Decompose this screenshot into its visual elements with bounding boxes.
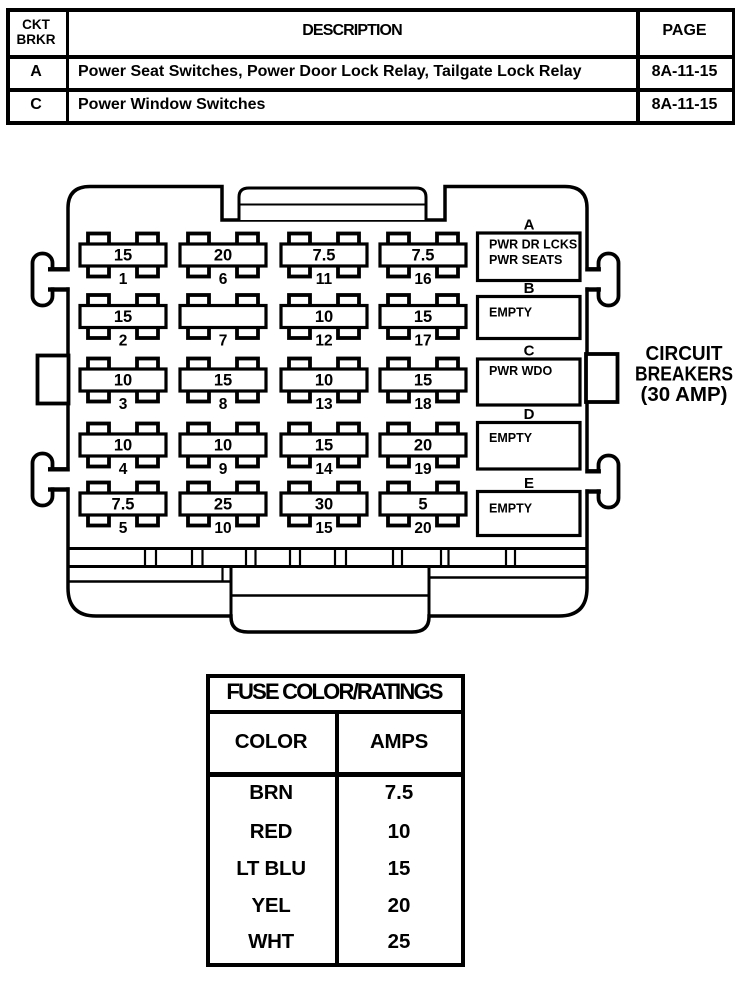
svg-text:B: B xyxy=(524,280,535,297)
svg-text:14: 14 xyxy=(315,461,333,478)
svg-text:15: 15 xyxy=(214,372,232,390)
svg-text:10: 10 xyxy=(315,308,333,326)
svg-text:D: D xyxy=(524,406,535,423)
svg-text:13: 13 xyxy=(315,396,333,413)
svg-text:CIRCUIT: CIRCUIT xyxy=(646,343,723,365)
svg-text:2: 2 xyxy=(119,333,128,350)
svg-text:6: 6 xyxy=(219,271,228,288)
svg-text:5: 5 xyxy=(418,496,427,514)
svg-text:PWR SEATS: PWR SEATS xyxy=(489,253,562,267)
svg-text:3: 3 xyxy=(119,396,128,413)
svg-text:15: 15 xyxy=(114,308,132,326)
svg-text:30: 30 xyxy=(315,496,333,514)
svg-text:10: 10 xyxy=(315,372,333,390)
svg-text:EMPTY: EMPTY xyxy=(489,502,533,516)
svg-text:PWR DR LCKS: PWR DR LCKS xyxy=(489,238,577,252)
svg-text:15: 15 xyxy=(315,437,333,455)
svg-text:15: 15 xyxy=(114,247,132,265)
svg-text:PWR WDO: PWR WDO xyxy=(489,364,552,378)
svg-text:C: C xyxy=(524,343,535,360)
svg-text:EMPTY: EMPTY xyxy=(489,431,533,445)
svg-text:15: 15 xyxy=(414,308,432,326)
svg-text:4: 4 xyxy=(119,461,128,478)
svg-text:A: A xyxy=(524,217,535,234)
svg-text:5: 5 xyxy=(119,520,128,537)
svg-text:11: 11 xyxy=(316,271,333,288)
svg-text:10: 10 xyxy=(214,437,232,455)
svg-text:15: 15 xyxy=(315,520,333,537)
svg-text:7: 7 xyxy=(219,333,228,350)
svg-text:BREAKERS: BREAKERS xyxy=(635,364,733,386)
svg-text:E: E xyxy=(524,475,534,492)
svg-text:EMPTY: EMPTY xyxy=(489,306,533,320)
svg-text:20: 20 xyxy=(414,437,432,455)
svg-text:10: 10 xyxy=(114,372,132,390)
svg-text:10: 10 xyxy=(114,437,132,455)
svg-text:19: 19 xyxy=(414,461,432,478)
svg-text:10: 10 xyxy=(214,520,231,537)
svg-text:7.5: 7.5 xyxy=(412,247,435,265)
svg-text:(30 AMP): (30 AMP) xyxy=(641,384,728,406)
svg-text:7.5: 7.5 xyxy=(313,247,336,265)
svg-text:12: 12 xyxy=(315,333,332,350)
svg-text:15: 15 xyxy=(414,372,432,390)
svg-text:20: 20 xyxy=(414,520,431,537)
svg-text:25: 25 xyxy=(214,496,232,514)
svg-text:7.5: 7.5 xyxy=(112,496,135,514)
svg-text:20: 20 xyxy=(214,247,232,265)
svg-text:18: 18 xyxy=(414,396,432,413)
svg-text:16: 16 xyxy=(414,271,432,288)
svg-text:9: 9 xyxy=(219,461,228,478)
svg-text:8: 8 xyxy=(219,396,228,413)
svg-text:1: 1 xyxy=(119,271,128,288)
svg-text:17: 17 xyxy=(414,333,431,350)
